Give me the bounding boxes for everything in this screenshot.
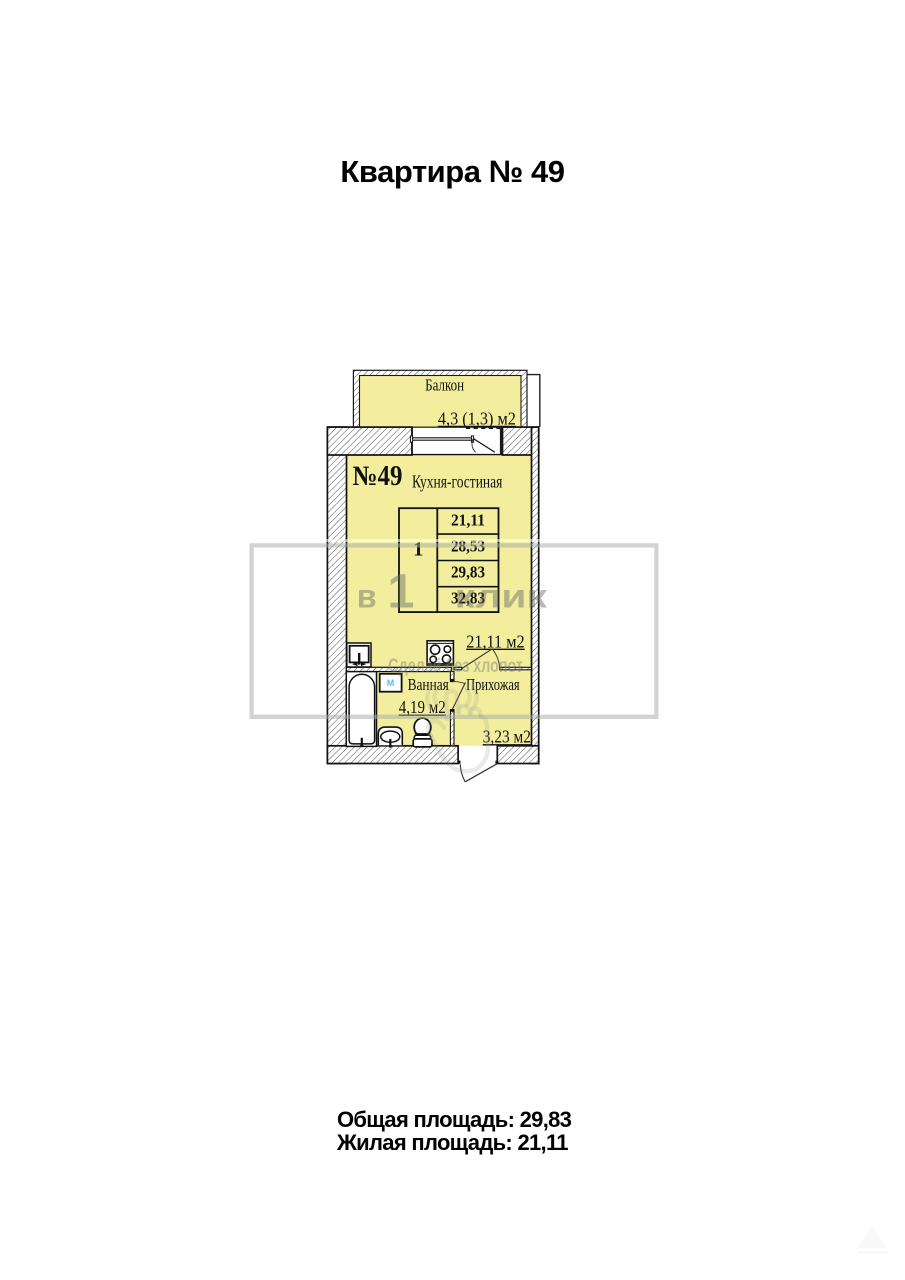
svg-text:в: в	[357, 578, 377, 615]
svg-text:М: М	[387, 678, 394, 688]
svg-text:Сделай без хлопот: Сделай без хлопот	[388, 656, 523, 677]
svg-text:21,11 м2: 21,11 м2	[466, 631, 525, 651]
svg-text:4,3 (1,3) м2: 4,3 (1,3) м2	[438, 408, 516, 428]
svg-text:4,19 м2: 4,19 м2	[399, 697, 446, 717]
svg-text:№49: №49	[353, 461, 403, 492]
svg-text:Кухня-гостиная: Кухня-гостиная	[412, 472, 502, 492]
svg-text:1: 1	[388, 565, 415, 619]
svg-text:Балкон: Балкон	[425, 376, 464, 395]
svg-text:клик: клик	[455, 578, 548, 615]
svg-text:21,11: 21,11	[451, 510, 485, 529]
